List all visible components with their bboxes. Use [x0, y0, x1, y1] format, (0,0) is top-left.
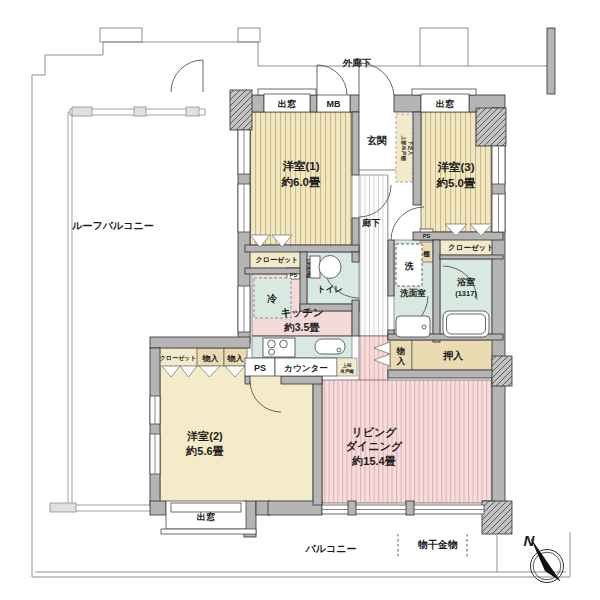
closet-room3-label: クローゼット — [448, 243, 494, 252]
monoire-living-char2: 入 — [396, 356, 406, 366]
western3-area: 約5.0畳 — [436, 177, 476, 189]
meter-box-door — [317, 65, 347, 95]
bathroom-name: 浴室 — [456, 277, 475, 287]
counter-label: カウンター — [284, 363, 328, 373]
living-area: 約15.4畳 — [351, 455, 395, 467]
roof-balcony-door — [171, 60, 203, 92]
compass: N — [524, 532, 564, 583]
railing-cap — [72, 107, 92, 116]
balcony-label: バルコニー — [305, 543, 357, 554]
laundry-fitting-label: 物干金物 — [417, 539, 458, 550]
floor-plan: N 外廊下 出窓 MB 出窓 玄関 洋室(1) 約6.0畳 洋室(3) 約5.0… — [0, 0, 600, 600]
floor-plan-svg: N 外廊下 出窓 MB 出窓 玄関 洋室(1) 約6.0畳 洋室(3) 約5.0… — [0, 0, 600, 600]
counter-upper-cabinet-l2: 吊戸棚 — [340, 368, 354, 375]
bay-window-label-ne: 出窓 — [436, 99, 454, 109]
entrance-label: 玄関 — [366, 135, 387, 146]
western1-name: 洋室(1) — [282, 160, 319, 172]
pipe-space-label-counter: PS — [254, 363, 266, 373]
counter-upper-cabinet-l1: 上部 — [342, 363, 353, 368]
bay-window-label-south: 出窓 — [197, 512, 215, 522]
shoe-cabinet-label: 下足入 — [407, 140, 414, 157]
washer-label: 洗 — [405, 261, 415, 271]
railing-cap — [50, 503, 76, 512]
railing-cap — [186, 107, 199, 116]
kitchen-area: 約3.5畳 — [283, 321, 320, 333]
roof-balcony-label: ルーフバルコニー — [71, 220, 153, 231]
bay-window-label-nw: 出窓 — [278, 99, 296, 109]
neighbour-wall — [547, 28, 555, 94]
washroom-label: 洗面室 — [399, 288, 426, 298]
railing-cap — [134, 107, 146, 116]
hallway-floor — [359, 175, 388, 336]
closet-room1-label: クローゼット — [256, 256, 299, 264]
living-line2: ダイニング — [346, 440, 403, 452]
kitchen-sink-fixture — [315, 339, 345, 354]
shelf-label: 棚 — [422, 250, 430, 258]
meter-box-label: MB — [327, 99, 341, 109]
outer-corridor-label: 外廊下 — [342, 57, 372, 68]
bathtub-fixture — [443, 311, 489, 337]
hatch-jog-east — [492, 356, 512, 386]
washroom-vanity-fixture — [396, 316, 430, 337]
hatch-corner-northwest — [230, 90, 252, 130]
western3-name: 洋室(3) — [437, 161, 474, 173]
western2-name: 洋室(2) — [186, 430, 223, 442]
toilet-fixture — [310, 256, 341, 279]
western2-area: 約5.6畳 — [185, 445, 223, 457]
stove-fixture — [263, 338, 295, 357]
kitchen-name: キッチン — [281, 306, 324, 318]
hatch-balcony-pillar — [482, 501, 512, 534]
western1-area: 約6.0畳 — [281, 176, 321, 188]
bathroom-size: (1317) — [455, 289, 477, 298]
corridor-notch — [420, 28, 468, 66]
monoire-room2-label-a: 物入 — [202, 354, 220, 363]
closet-room2-label: クローゼット — [160, 355, 197, 362]
hallway-label: 廊下 — [361, 218, 381, 228]
pipe-space-label-washroom: PS — [423, 233, 431, 239]
pipe-space-label-kitchen: PS — [290, 272, 298, 278]
oshiire-label: 押入 — [442, 350, 464, 361]
western-room2-floor — [160, 364, 313, 503]
compass-north-label: N — [524, 532, 536, 549]
hatch-corner-northeast — [476, 108, 506, 146]
living-line1: リビング — [351, 426, 397, 438]
shoe-cabinet-upper-label: 上部吊戸棚 — [400, 135, 407, 161]
toilet-label: トイレ — [317, 284, 343, 294]
corridor-edge-line-left — [258, 42, 420, 66]
monoire-room2-label-b: 物入 — [227, 354, 245, 363]
neighbour-block-left — [100, 28, 142, 42]
railing-west — [68, 112, 72, 510]
monoire-living-char1: 物 — [396, 346, 406, 356]
neighbour-block-mid — [238, 28, 260, 42]
fridge-label: 冷 — [267, 293, 278, 304]
